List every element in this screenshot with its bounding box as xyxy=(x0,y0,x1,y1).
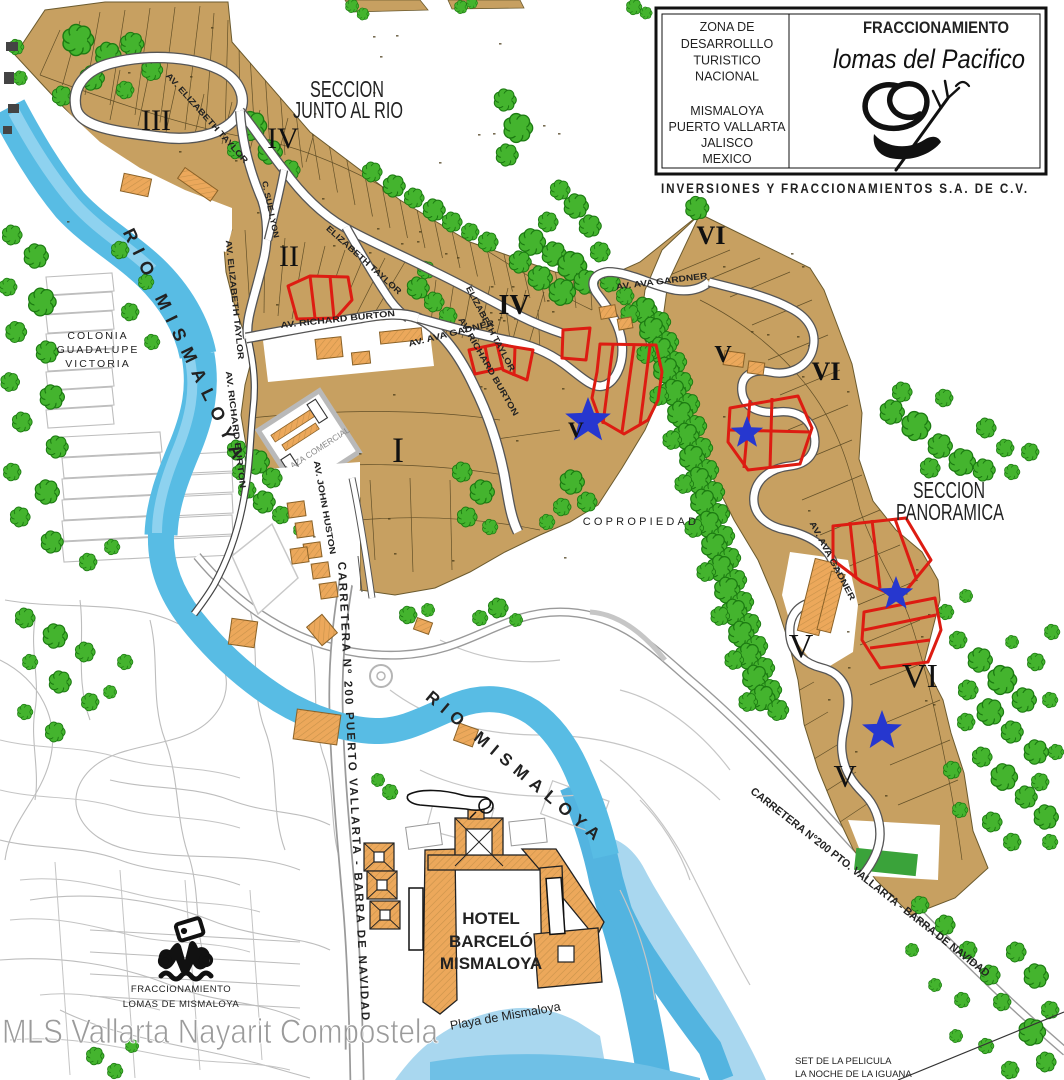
svg-text:PANORAMICA: PANORAMICA xyxy=(896,499,1004,525)
svg-text:GUADALUPE: GUADALUPE xyxy=(57,344,140,356)
svg-text:VI: VI xyxy=(697,221,726,250)
svg-text:INVERSIONES Y FRACCIONAMIENTOS: INVERSIONES Y FRACCIONAMIENTOS S.A. DE C… xyxy=(661,181,1029,196)
svg-text:BARCELÓ: BARCELÓ xyxy=(449,932,533,951)
svg-text:SET DE LA PELICULA: SET DE LA PELICULA xyxy=(795,1056,892,1067)
svg-text:III: III xyxy=(141,104,171,137)
svg-text:JALISCO: JALISCO xyxy=(701,136,753,150)
svg-text:FRACCIONAMIENTO: FRACCIONAMIENTO xyxy=(131,984,231,995)
svg-text:V: V xyxy=(568,417,584,442)
svg-text:IV: IV xyxy=(498,290,529,321)
svg-text:lomas del Pacifico: lomas del Pacifico xyxy=(833,44,1025,74)
svg-text:V: V xyxy=(714,342,732,368)
svg-text:I: I xyxy=(392,430,404,470)
svg-text:HOTEL: HOTEL xyxy=(462,909,520,928)
svg-text:COLONIA: COLONIA xyxy=(67,330,128,342)
svg-text:NACIONAL: NACIONAL xyxy=(695,70,759,84)
svg-text:MEXICO: MEXICO xyxy=(702,152,752,166)
svg-text:IV: IV xyxy=(267,122,299,155)
svg-text:PUERTO VALLARTA: PUERTO VALLARTA xyxy=(669,120,787,134)
svg-text:DESARROLLLO: DESARROLLLO xyxy=(681,37,774,51)
svg-text:MISMALOYA: MISMALOYA xyxy=(690,104,764,118)
svg-text:TURISTICO: TURISTICO xyxy=(693,54,761,68)
svg-text:JUNTO AL RIO: JUNTO AL RIO xyxy=(293,97,403,123)
svg-text:LOMAS DE MISMALOYA: LOMAS DE MISMALOYA xyxy=(123,999,240,1010)
svg-text:COPROPIEDAD: COPROPIEDAD xyxy=(583,516,700,528)
svg-text:MLS Vallarta Nayarit Compostel: MLS Vallarta Nayarit Compostela xyxy=(2,1013,438,1051)
svg-text:MISMALOYA: MISMALOYA xyxy=(440,954,542,973)
svg-text:VICTORIA: VICTORIA xyxy=(65,358,130,370)
svg-text:VI: VI xyxy=(902,658,938,695)
svg-text:V: V xyxy=(833,758,856,794)
svg-text:V: V xyxy=(789,628,814,665)
svg-text:VI: VI xyxy=(812,357,841,386)
svg-text:LA NOCHE DE LA IGUANA: LA NOCHE DE LA IGUANA xyxy=(795,1069,912,1080)
svg-text:FRACCIONAMIENTO: FRACCIONAMIENTO xyxy=(863,18,1009,37)
svg-text:ZONA DE: ZONA DE xyxy=(700,20,755,34)
svg-text:II: II xyxy=(279,240,299,273)
